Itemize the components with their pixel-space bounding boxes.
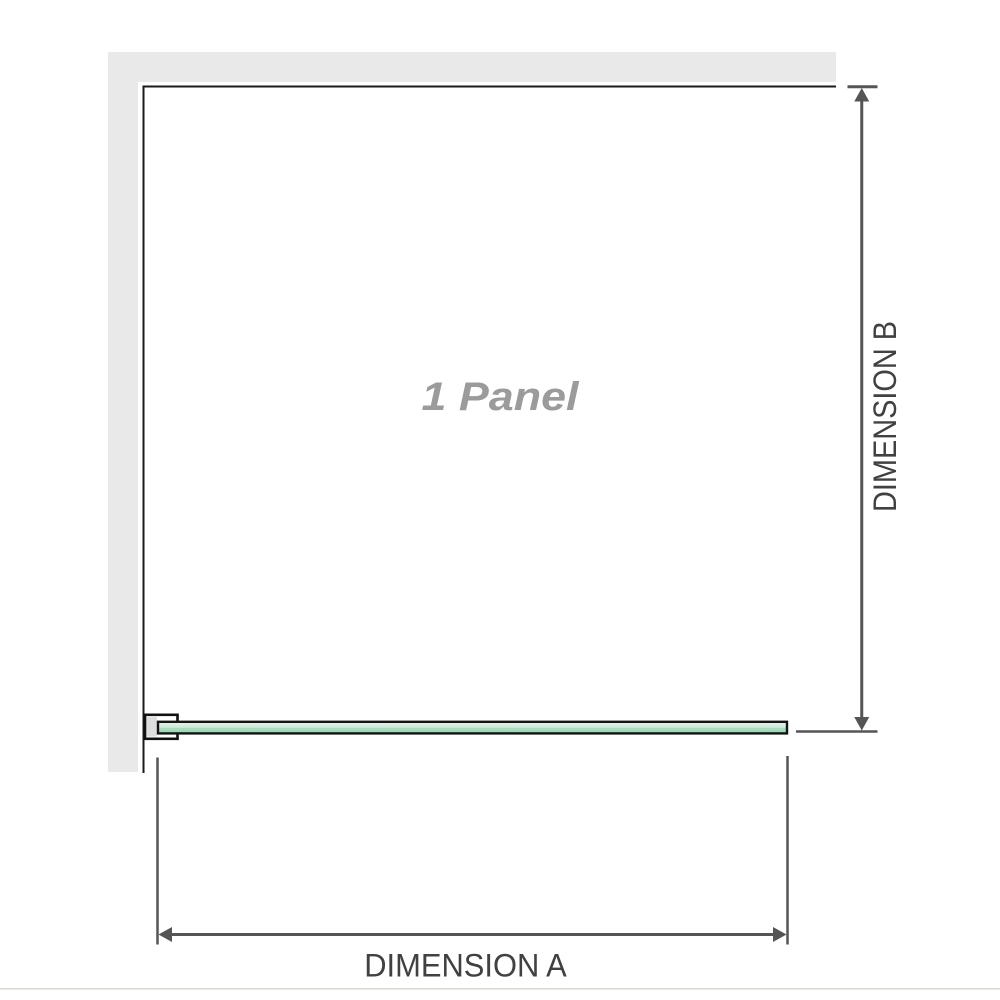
svg-text:DIMENSION A: DIMENSION A	[364, 948, 567, 984]
svg-text:1 Panel: 1 Panel	[422, 375, 580, 419]
svg-text:DIMENSION B: DIMENSION B	[867, 321, 903, 512]
